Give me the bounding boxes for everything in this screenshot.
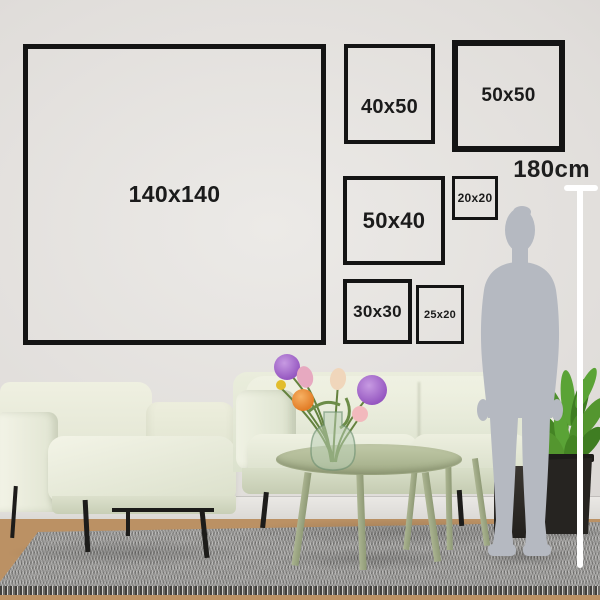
rosebud-flower <box>352 406 368 422</box>
flower-vase <box>248 340 418 475</box>
frame-size-label: 50x40 <box>363 208 426 234</box>
allium-flower <box>274 354 300 380</box>
craspedia-flower <box>276 380 286 390</box>
measure-line <box>577 188 583 568</box>
frame-50x40: 50x40 <box>343 176 445 265</box>
size-guide-scene: 140x140 40x50 50x50 50x40 20x20 30x30 25… <box>0 0 600 600</box>
frame-size-label: 25x20 <box>424 309 456 321</box>
frame-40x50: 40x50 <box>344 44 435 144</box>
silhouette-foot <box>488 544 516 556</box>
silhouette-hand <box>477 399 489 421</box>
frame-25x20: 25x20 <box>416 285 464 344</box>
tulip-flower-cream <box>329 367 348 391</box>
armchair-seat-cushion <box>48 436 236 502</box>
rug-fringe <box>0 586 600 595</box>
silhouette-head <box>505 208 535 252</box>
height-label: 180cm <box>508 156 590 184</box>
silhouette-torso <box>481 262 559 418</box>
frame-140x140: 140x140 <box>23 44 326 345</box>
silhouette-left-leg <box>490 418 518 552</box>
frame-size-label: 30x30 <box>353 302 402 322</box>
silhouette-foot <box>523 544 551 556</box>
frame-50x50: 50x50 <box>452 40 565 152</box>
silhouette-right-leg <box>522 418 550 552</box>
orange-flower <box>292 389 314 411</box>
silhouette-hand <box>551 399 563 421</box>
allium-flower <box>357 375 387 405</box>
frame-size-label: 40x50 <box>361 96 418 119</box>
armchair-leg <box>126 512 130 536</box>
frame-size-label: 140x140 <box>129 181 221 208</box>
frame-size-label: 50x50 <box>481 85 535 107</box>
frame-30x30: 30x30 <box>343 279 412 344</box>
